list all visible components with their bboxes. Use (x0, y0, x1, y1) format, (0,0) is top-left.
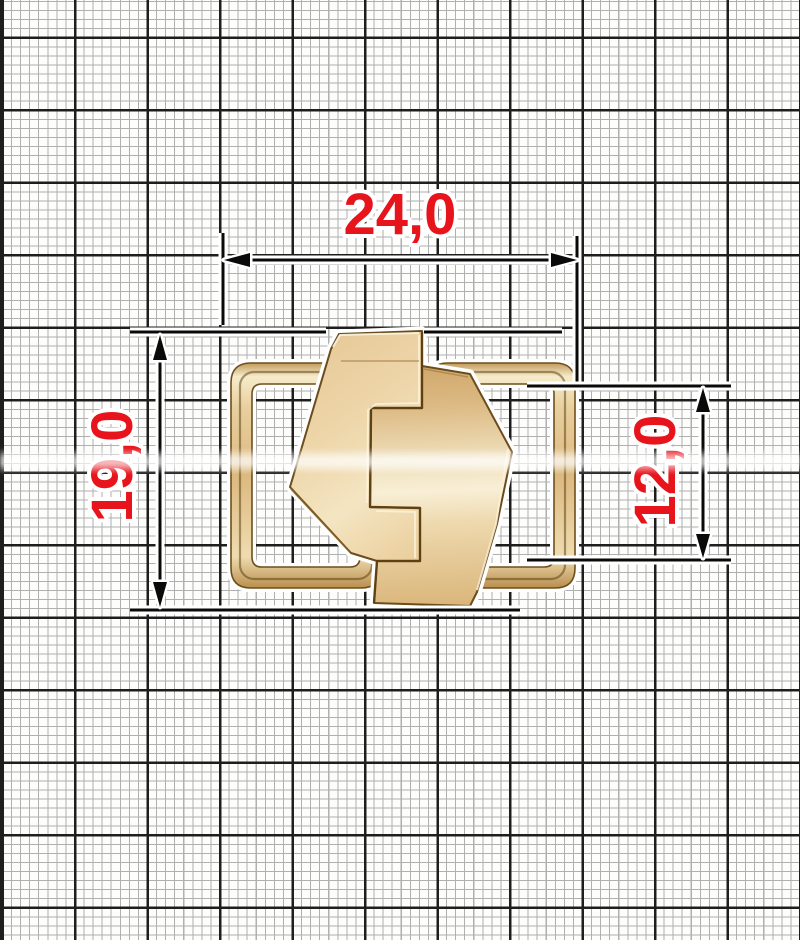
technical-drawing: 24,0 19,0 12,0 (0, 0, 800, 940)
dimension-height-label: 19,0 (80, 410, 145, 523)
buckle-photo (231, 331, 575, 606)
dimension-width-label: 24,0 (344, 182, 457, 247)
dimension-opening-label: 12,0 (623, 415, 688, 528)
graph-paper-background: 24,0 19,0 12,0 (0, 0, 800, 940)
